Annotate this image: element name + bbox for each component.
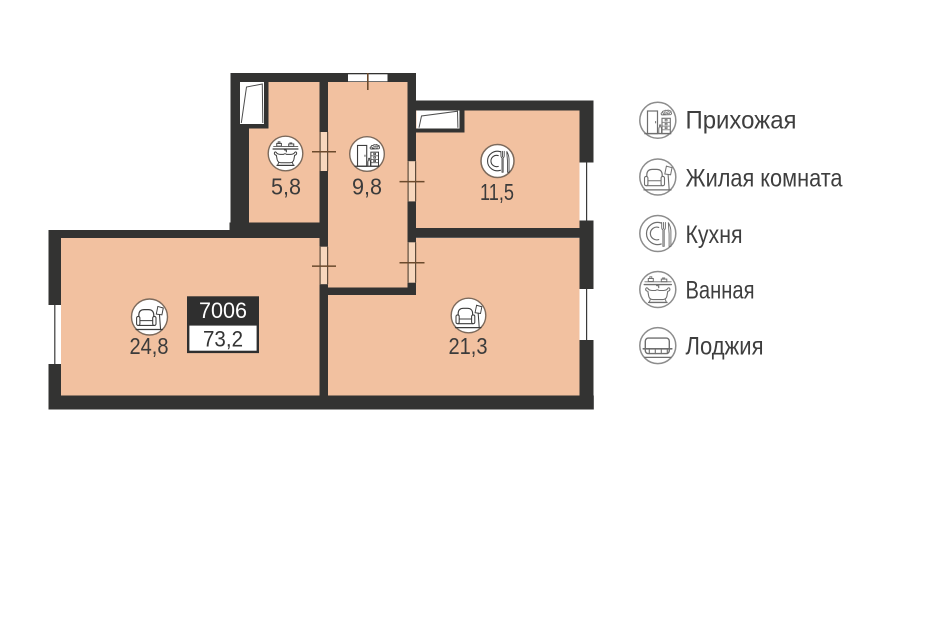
svg-text:Прихожая: Прихожая	[686, 107, 797, 135]
svg-text:73,2: 73,2	[203, 326, 243, 351]
svg-text:Лоджия: Лоджия	[686, 332, 764, 360]
svg-text:Кухня: Кухня	[686, 221, 743, 249]
svg-text:21,3: 21,3	[449, 333, 488, 359]
svg-text:9,8: 9,8	[352, 173, 382, 199]
svg-text:Ванная: Ванная	[686, 276, 755, 304]
svg-text:Жилая комната: Жилая комната	[686, 164, 843, 192]
svg-text:24,8: 24,8	[130, 333, 169, 359]
svg-text:5,8: 5,8	[271, 173, 301, 199]
svg-text:11,5: 11,5	[480, 179, 514, 205]
svg-text:7006: 7006	[199, 298, 247, 323]
